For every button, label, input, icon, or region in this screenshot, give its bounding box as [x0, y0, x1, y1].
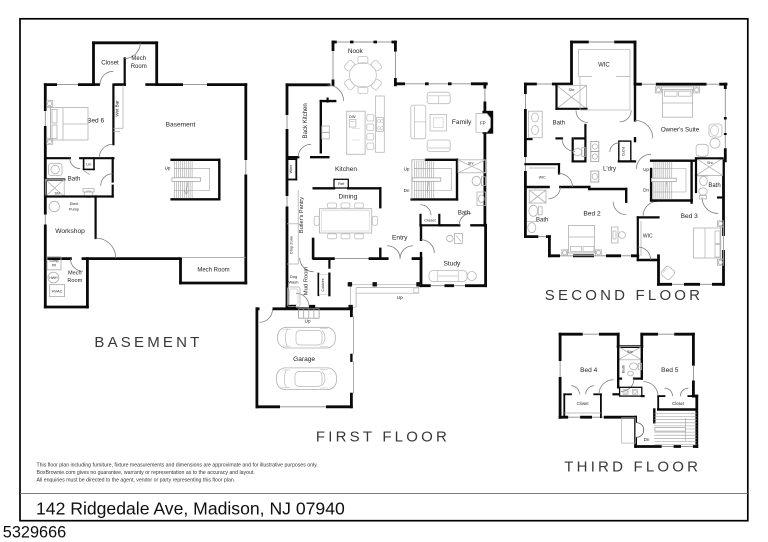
svg-text:WIC: WIC: [539, 176, 546, 180]
svg-text:Family: Family: [452, 119, 472, 126]
svg-text:Closet: Closet: [101, 60, 119, 67]
svg-text:Pit: Pit: [52, 264, 56, 268]
svg-text:Bath: Bath: [68, 176, 81, 183]
svg-text:Up: Up: [165, 166, 171, 171]
svg-text:Wash: Wash: [288, 280, 298, 285]
svg-text:Cubbies: Cubbies: [321, 278, 325, 291]
svg-text:Dn: Dn: [404, 188, 410, 193]
svg-text:Back Kitchen: Back Kitchen: [303, 103, 309, 138]
svg-text:Workshop: Workshop: [55, 228, 85, 235]
svg-text:Butler's Pantry: Butler's Pantry: [299, 197, 305, 233]
svg-text:Kitchen: Kitchen: [335, 166, 357, 173]
svg-text:Owner's Suite: Owner's Suite: [661, 127, 700, 134]
svg-text:Up: Up: [404, 167, 410, 172]
svg-text:Bath: Bath: [458, 210, 470, 216]
svg-text:WIC: WIC: [598, 63, 610, 69]
svg-text:Shr: Shr: [534, 185, 540, 189]
svg-text:DW: DW: [349, 114, 356, 119]
svg-text:BASEMENT: BASEMENT: [94, 334, 202, 351]
svg-text:Bed 3: Bed 3: [681, 213, 699, 220]
svg-text:Dn: Dn: [643, 188, 649, 193]
svg-text:Dog: Dog: [290, 274, 297, 279]
svg-text:Dining: Dining: [339, 194, 358, 201]
svg-text:Cub'd: Cub'd: [622, 147, 626, 156]
svg-text:Garage: Garage: [293, 356, 315, 363]
svg-text:Up: Up: [305, 318, 311, 323]
svg-text:Shr: Shr: [468, 161, 475, 165]
svg-text:Up: Up: [643, 167, 649, 172]
svg-text:142 Ridgedale Ave, Madison, NJ: 142 Ridgedale Ave, Madison, NJ 07940: [36, 499, 345, 519]
svg-text:Dn: Dn: [644, 437, 650, 442]
svg-text:Room: Room: [67, 278, 82, 284]
svg-text:Bed 5: Bed 5: [661, 367, 679, 374]
svg-text:WIC: WIC: [643, 234, 653, 240]
svg-text:Bath: Bath: [536, 217, 548, 223]
svg-text:Bath: Bath: [553, 121, 565, 127]
svg-text:Closet: Closet: [672, 401, 685, 406]
svg-text:Bath: Bath: [621, 365, 626, 373]
svg-text:Mech Room: Mech Room: [197, 268, 229, 274]
svg-text:All enquiries must be directed: All enquiries must be directed to the ag…: [37, 478, 236, 484]
svg-text:Nook: Nook: [348, 48, 364, 55]
svg-text:Mech: Mech: [131, 56, 146, 62]
svg-text:Shr: Shr: [707, 161, 714, 165]
svg-text:THIRD FLOOR: THIRD FLOOR: [564, 459, 701, 476]
svg-text:Bed 2: Bed 2: [583, 211, 601, 218]
svg-text:Bed 6: Bed 6: [87, 118, 105, 125]
svg-text:This floor plan including furn: This floor plan including furniture, fix…: [37, 463, 318, 469]
svg-text:BoxBrownie.com gives no guaran: BoxBrownie.com gives no guarantee, warra…: [37, 470, 255, 476]
svg-text:Wet Bar: Wet Bar: [114, 100, 119, 117]
svg-text:Study: Study: [443, 261, 461, 268]
svg-text:Bed 4: Bed 4: [580, 367, 598, 374]
svg-text:Closet: Closet: [424, 217, 436, 222]
svg-text:Bath: Bath: [708, 183, 720, 189]
svg-text:HVAC: HVAC: [52, 289, 63, 294]
svg-text:Mech: Mech: [68, 271, 82, 277]
svg-text:Entry: Entry: [392, 235, 408, 242]
svg-text:Elect: Elect: [70, 201, 80, 206]
svg-text:FP: FP: [480, 120, 486, 125]
svg-text:Lin: Lin: [86, 163, 91, 167]
svg-text:Drop Zone: Drop Zone: [290, 236, 294, 254]
svg-text:Wine: Wine: [289, 165, 293, 174]
svg-text:FIRST FLOOR: FIRST FLOOR: [316, 429, 450, 446]
svg-text:Shr: Shr: [569, 88, 576, 92]
svg-text:Shr: Shr: [627, 350, 634, 354]
svg-text:Mud Room: Mud Room: [304, 267, 310, 296]
svg-text:Room: Room: [131, 64, 147, 70]
svg-text:SECOND FLOOR: SECOND FLOOR: [545, 287, 703, 304]
svg-text:Up: Up: [397, 295, 403, 300]
svg-text:Basement: Basement: [166, 122, 196, 129]
svg-text:Pump: Pump: [69, 207, 79, 212]
svg-text:HWH: HWH: [49, 276, 58, 280]
svg-text:Ref: Ref: [338, 181, 345, 186]
svg-text:L'dry: L'dry: [603, 167, 616, 173]
svg-text:Closet: Closet: [577, 401, 590, 406]
svg-text:Sump: Sump: [49, 259, 58, 263]
svg-text:5329666: 5329666: [3, 524, 66, 542]
svg-text:Shr: Shr: [55, 192, 61, 196]
